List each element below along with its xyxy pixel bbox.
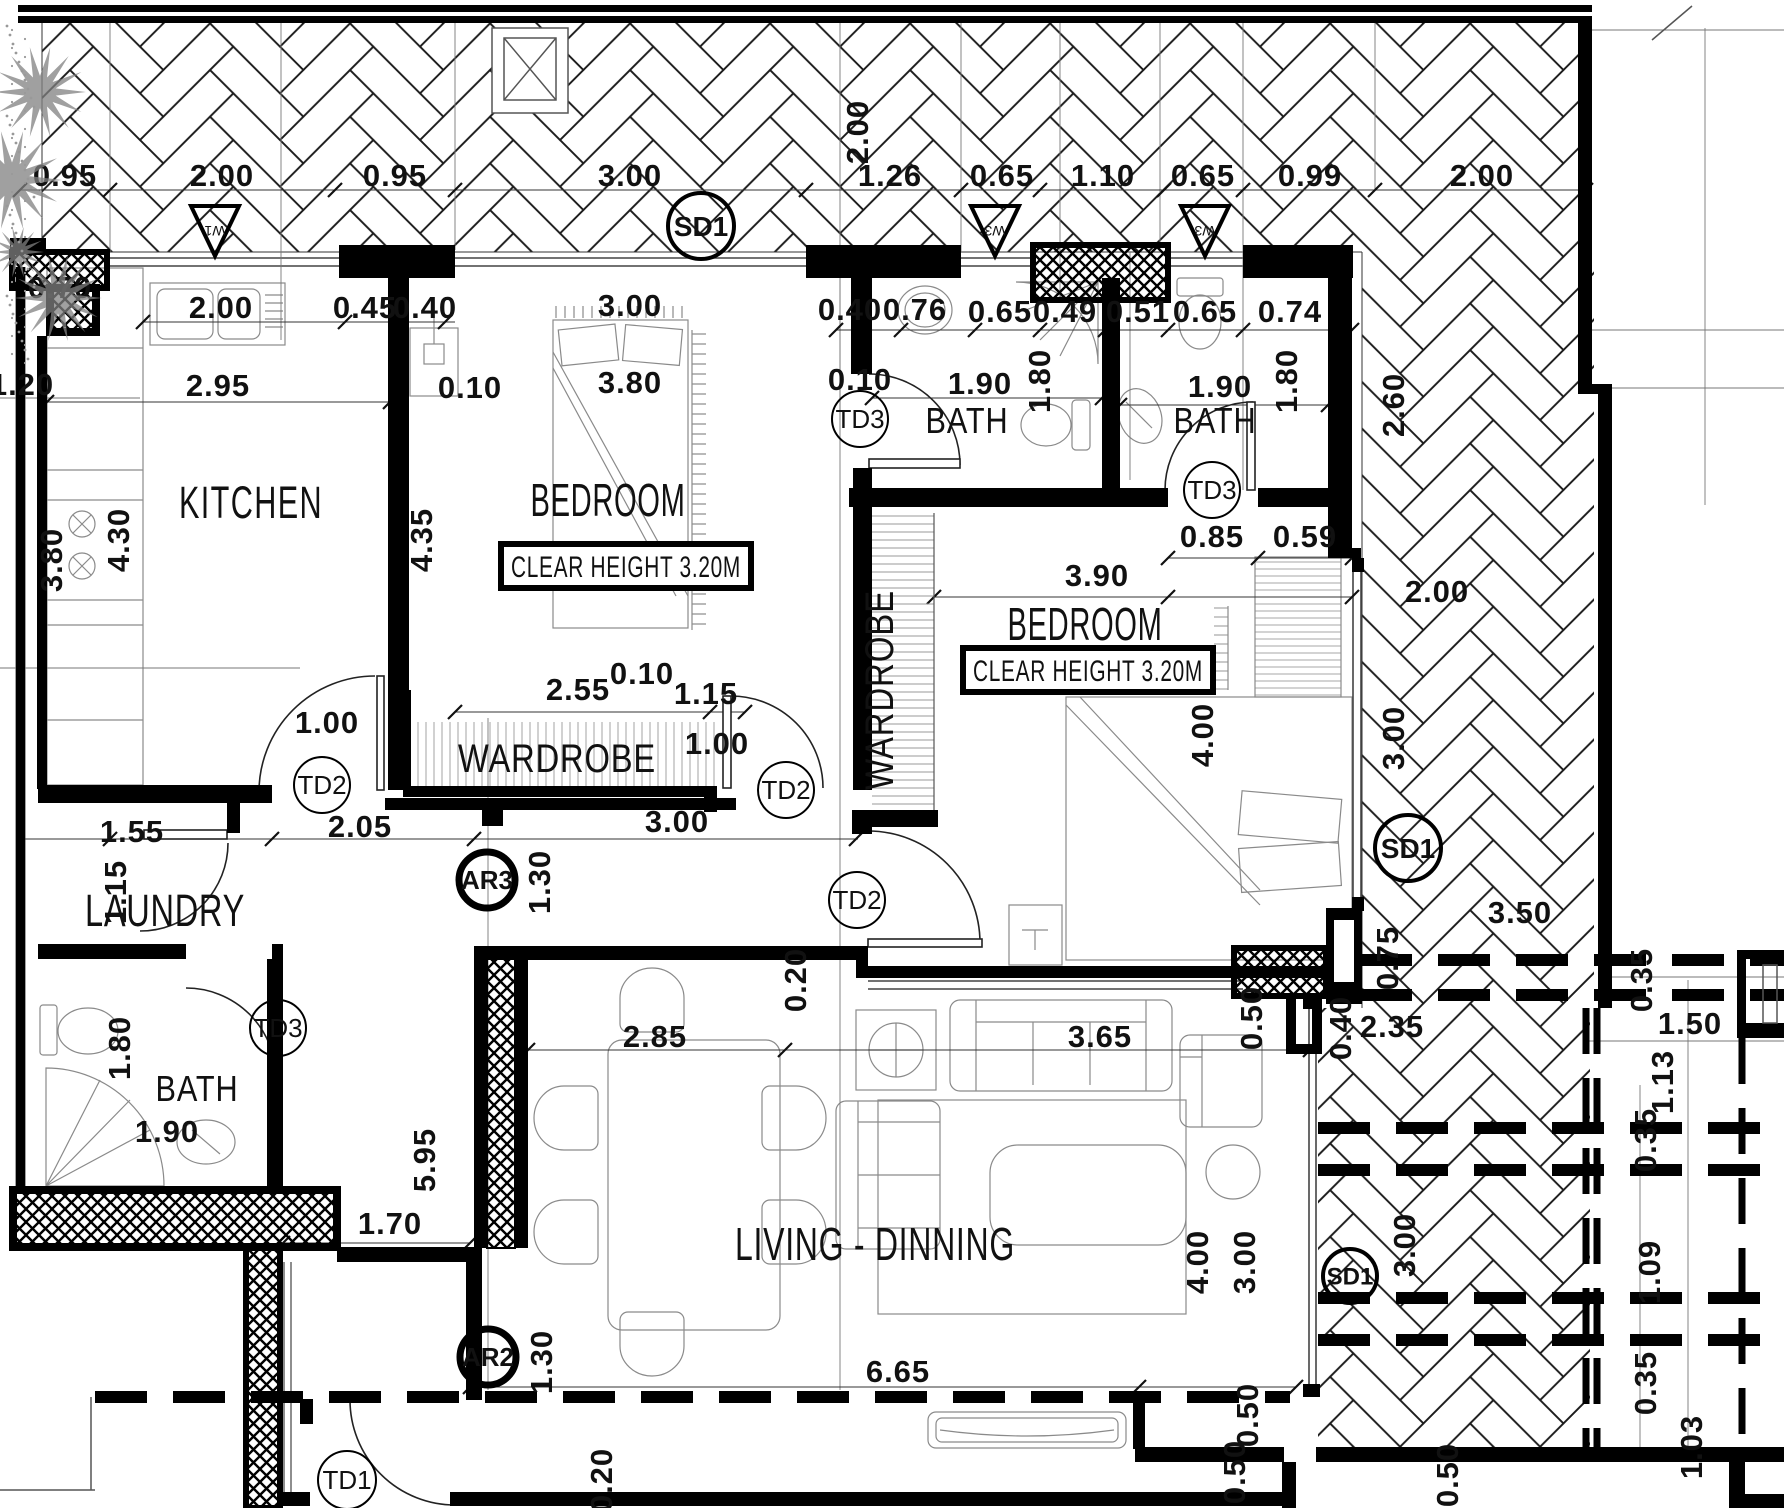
svg-text:WARDROBE: WARDROBE <box>458 737 656 781</box>
svg-text:1.30: 1.30 <box>522 850 557 914</box>
svg-text:1.70: 1.70 <box>358 1206 422 1241</box>
svg-text:2.95: 2.95 <box>186 368 250 403</box>
svg-text:0.51: 0.51 <box>1106 294 1170 329</box>
svg-text:BEDROOM: BEDROOM <box>1008 598 1163 650</box>
svg-text:0.75: 0.75 <box>1370 926 1405 990</box>
svg-text:2.60: 2.60 <box>1376 373 1411 437</box>
svg-text:1.90: 1.90 <box>135 1114 199 1149</box>
svg-text:CLEAR HEIGHT 3.20M: CLEAR HEIGHT 3.20M <box>973 655 1203 688</box>
svg-text:W3: W3 <box>984 223 1005 239</box>
svg-text:TD2: TD2 <box>832 885 881 915</box>
svg-text:TD1: TD1 <box>322 1465 371 1495</box>
svg-text:0.35: 0.35 <box>1624 948 1659 1012</box>
svg-text:1.50: 1.50 <box>1658 1006 1722 1041</box>
svg-text:BATH: BATH <box>1174 400 1257 441</box>
svg-text:0.10: 0.10 <box>610 656 674 691</box>
svg-text:3.00: 3.00 <box>1376 706 1411 770</box>
svg-text:KITCHEN: KITCHEN <box>179 477 323 528</box>
svg-text:0.40: 0.40 <box>1323 996 1358 1060</box>
svg-text:0.65: 0.65 <box>970 158 1034 193</box>
svg-text:SD1: SD1 <box>674 211 728 242</box>
svg-text:1.80: 1.80 <box>1269 349 1304 413</box>
svg-text:4.30: 4.30 <box>101 508 136 572</box>
svg-text:AR2: AR2 <box>462 1342 514 1372</box>
svg-text:LAUNDRY: LAUNDRY <box>85 885 245 936</box>
svg-text:CLEAR HEIGHT 3.20M: CLEAR HEIGHT 3.20M <box>511 551 741 584</box>
svg-text:0.50: 0.50 <box>1234 986 1269 1050</box>
svg-text:0.49: 0.49 <box>1033 294 1097 329</box>
svg-text:0.65: 0.65 <box>968 294 1032 329</box>
svg-text:1.09: 1.09 <box>1632 1240 1667 1304</box>
svg-text:2.00: 2.00 <box>1405 574 1469 609</box>
svg-text:1.03: 1.03 <box>1674 1415 1709 1479</box>
svg-text:3.00: 3.00 <box>1387 1213 1422 1277</box>
svg-text:2.85: 2.85 <box>623 1019 687 1054</box>
svg-text:1.80: 1.80 <box>1022 349 1057 413</box>
svg-text:3.00: 3.00 <box>645 804 709 839</box>
svg-text:0.74: 0.74 <box>1258 294 1322 329</box>
svg-text:1.20: 1.20 <box>0 367 54 402</box>
svg-text:4.00: 4.00 <box>1185 703 1220 767</box>
svg-text:1.00: 1.00 <box>295 705 359 740</box>
svg-text:0.35: 0.35 <box>1628 1351 1663 1415</box>
svg-text:3.00: 3.00 <box>1227 1230 1262 1294</box>
svg-text:1.10: 1.10 <box>1071 158 1135 193</box>
svg-text:0.50: 0.50 <box>1430 1443 1465 1507</box>
svg-text:0.76: 0.76 <box>883 292 947 327</box>
svg-text:4.00: 4.00 <box>1180 1230 1215 1294</box>
svg-text:3.65: 3.65 <box>1068 1019 1132 1054</box>
svg-text:0.99: 0.99 <box>1278 158 1342 193</box>
svg-text:SD1: SD1 <box>1327 1263 1374 1290</box>
svg-text:TD2: TD2 <box>297 770 346 800</box>
svg-text:2.35: 2.35 <box>1360 1009 1424 1044</box>
svg-text:3.80: 3.80 <box>34 528 69 592</box>
svg-text:6.65: 6.65 <box>866 1354 930 1389</box>
svg-text:1.00: 1.00 <box>685 726 749 761</box>
svg-text:SD1: SD1 <box>1381 833 1435 864</box>
svg-text:4.35: 4.35 <box>404 508 439 572</box>
svg-text:0.95: 0.95 <box>33 158 97 193</box>
svg-text:0.65: 0.65 <box>1171 158 1235 193</box>
svg-text:0.65: 0.65 <box>1173 294 1237 329</box>
svg-text:0.20: 0.20 <box>778 948 813 1012</box>
svg-text:0.59: 0.59 <box>1273 519 1337 554</box>
svg-text:2.00: 2.00 <box>1450 158 1514 193</box>
svg-text:1.13: 1.13 <box>1645 1050 1680 1114</box>
svg-text:0.45: 0.45 <box>333 290 397 325</box>
svg-text:3.80: 3.80 <box>598 365 662 400</box>
svg-text:TD3: TD3 <box>835 404 884 434</box>
svg-text:TD3: TD3 <box>253 1013 302 1043</box>
svg-text:3.00: 3.00 <box>598 158 662 193</box>
svg-text:2.00: 2.00 <box>190 158 254 193</box>
svg-text:BATH: BATH <box>926 400 1009 441</box>
svg-text:2.00: 2.00 <box>189 290 253 325</box>
svg-text:1.30: 1.30 <box>524 1330 559 1394</box>
svg-text:LIVING - DINNING: LIVING - DINNING <box>735 1218 1015 1270</box>
svg-text:BATH: BATH <box>156 1068 239 1109</box>
svg-text:WARDROBE: WARDROBE <box>858 590 902 790</box>
svg-text:0.85: 0.85 <box>1180 519 1244 554</box>
svg-text:1.90: 1.90 <box>948 366 1012 401</box>
svg-text:0.95: 0.95 <box>363 158 427 193</box>
svg-text:1.80: 1.80 <box>102 1016 137 1080</box>
svg-text:3.50: 3.50 <box>1488 895 1552 930</box>
svg-text:0.35: 0.35 <box>1628 1108 1663 1172</box>
svg-text:1.55: 1.55 <box>100 814 164 849</box>
svg-text:2.55: 2.55 <box>546 672 610 707</box>
svg-text:0.50: 0.50 <box>1217 1440 1252 1504</box>
svg-text:W3: W3 <box>1194 223 1215 239</box>
svg-text:TD3: TD3 <box>1187 475 1236 505</box>
svg-text:0.50: 0.50 <box>1230 1383 1265 1447</box>
svg-text:BEDROOM: BEDROOM <box>531 474 686 526</box>
svg-text:0.10: 0.10 <box>438 370 502 405</box>
svg-text:0.40: 0.40 <box>818 292 882 327</box>
svg-text:TD2: TD2 <box>761 775 810 805</box>
svg-text:2.00: 2.00 <box>840 100 875 164</box>
svg-text:AR3: AR3 <box>461 865 513 895</box>
svg-text:0.20: 0.20 <box>584 1448 619 1508</box>
svg-text:3.00: 3.00 <box>598 288 662 323</box>
svg-text:W1: W1 <box>204 223 225 239</box>
svg-text:3.90: 3.90 <box>1065 558 1129 593</box>
svg-text:2.05: 2.05 <box>328 809 392 844</box>
svg-text:5.95: 5.95 <box>407 1128 442 1192</box>
svg-text:1.15: 1.15 <box>674 676 738 711</box>
svg-text:0.40: 0.40 <box>393 290 457 325</box>
svg-text:1.90: 1.90 <box>1188 369 1252 404</box>
